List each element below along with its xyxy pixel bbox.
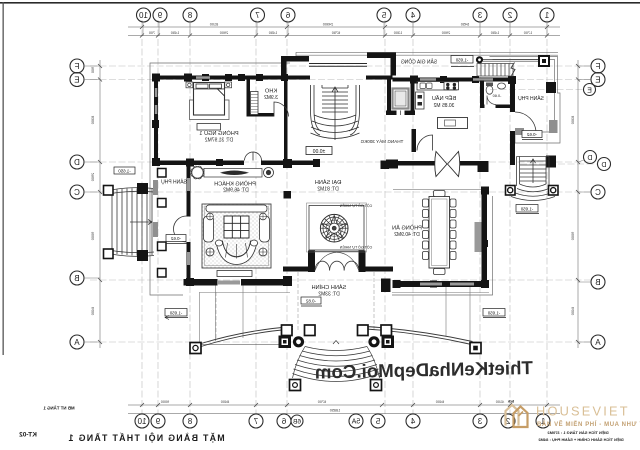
svg-text:E: E xyxy=(595,76,600,85)
svg-text:F: F xyxy=(595,62,600,71)
svg-text:bck: bck xyxy=(507,400,514,404)
svg-text:DT: 81M2: DT: 81M2 xyxy=(317,187,339,193)
svg-text:BẾP NẤU: BẾP NẤU xyxy=(432,95,456,102)
svg-text:5: 5 xyxy=(381,11,386,20)
svg-text:4: 4 xyxy=(410,11,415,20)
svg-text:PHÒNG ĂN: PHÒNG ĂN xyxy=(392,225,422,232)
svg-text:DT: 33M2: DT: 33M2 xyxy=(318,292,340,298)
svg-text:SẢNH PHỤ: SẢNH PHỤ xyxy=(518,95,544,102)
svg-text:KHO: KHO xyxy=(264,89,277,95)
svg-text:8100: 8100 xyxy=(210,23,218,27)
svg-text:1300: 1300 xyxy=(394,31,402,35)
svg-text:4100: 4100 xyxy=(496,400,504,404)
svg-text:24900: 24900 xyxy=(323,23,334,27)
svg-text:DT: 40.9M2: DT: 40.9M2 xyxy=(394,232,420,238)
svg-text:2900: 2900 xyxy=(91,173,95,181)
svg-text:3: 3 xyxy=(477,417,482,426)
svg-text:9000: 9000 xyxy=(571,232,575,240)
svg-text:±0.00: ±0.00 xyxy=(313,149,326,155)
svg-text:9000: 9000 xyxy=(161,400,169,404)
svg-text:2: 2 xyxy=(507,11,512,20)
svg-text:-1.650: -1.650 xyxy=(487,310,500,315)
svg-text:9000: 9000 xyxy=(91,232,95,240)
svg-text:A: A xyxy=(74,338,80,347)
svg-text:-1.650: -1.650 xyxy=(169,310,182,315)
svg-text:6400: 6400 xyxy=(91,307,95,315)
svg-text:4: 4 xyxy=(410,417,415,426)
svg-text:CỘT GỖ TỰ NHIÊN: CỘT GỖ TỰ NHIÊN xyxy=(339,203,372,208)
svg-text:B: B xyxy=(595,278,600,287)
svg-text:8400: 8400 xyxy=(221,400,229,404)
svg-text:6: 6 xyxy=(281,417,286,426)
svg-text:F: F xyxy=(74,62,79,71)
svg-text:KT-02: KT-02 xyxy=(19,432,37,439)
svg-text:-0.62: -0.62 xyxy=(170,236,181,241)
svg-text:-1.650: -1.650 xyxy=(455,57,468,62)
svg-text:E: E xyxy=(587,88,592,95)
svg-text:1700: 1700 xyxy=(524,31,532,35)
svg-text:SẢNH CHÍNH: SẢNH CHÍNH xyxy=(312,284,347,291)
svg-text:2900: 2900 xyxy=(220,31,228,35)
svg-text:8300: 8300 xyxy=(91,116,95,124)
svg-text:PHÒNG NGỦ 1: PHÒNG NGỦ 1 xyxy=(199,130,238,137)
svg-text:6700: 6700 xyxy=(318,400,326,404)
svg-text:10: 10 xyxy=(137,417,146,426)
svg-text:8: 8 xyxy=(187,11,192,20)
svg-text:MẶT BẰNG NỘI THẤT TẦNG 1: MẶT BẰNG NỘI THẤT TẦNG 1 xyxy=(67,432,224,443)
svg-text:THANG MÁY 300KG: THANG MÁY 300KG xyxy=(360,138,403,144)
svg-text:700: 700 xyxy=(149,31,155,35)
svg-text:C: C xyxy=(595,188,601,197)
svg-text:7: 7 xyxy=(253,417,258,426)
svg-text:PHÒNG KHÁCH: PHÒNG KHÁCH xyxy=(214,181,256,188)
svg-text:BẢN VẼ MIỄN PHÍ - MUA NHƯ Ý: BẢN VẼ MIỄN PHÍ - MUA NHƯ Ý xyxy=(537,420,640,428)
svg-text:8: 8 xyxy=(187,417,192,426)
svg-text:7: 7 xyxy=(255,11,260,20)
svg-text:2900: 2900 xyxy=(442,31,450,35)
svg-text:A: A xyxy=(595,338,601,347)
svg-text:30.85 M2: 30.85 M2 xyxy=(433,103,454,109)
svg-text:-0.60: -0.60 xyxy=(493,94,502,98)
svg-text:5A: 5A xyxy=(351,419,360,426)
svg-text:SẢNH PHỤ: SẢNH PHỤ xyxy=(161,179,187,186)
svg-text:1: 1 xyxy=(544,11,549,20)
svg-text:HOUSEVIET: HOUSEVIET xyxy=(536,404,630,419)
svg-text:6400: 6400 xyxy=(436,400,444,404)
svg-text:18850: 18850 xyxy=(330,409,341,413)
svg-text:D: D xyxy=(74,158,80,167)
svg-text:E: E xyxy=(74,76,79,85)
svg-text:3: 3 xyxy=(477,11,482,20)
svg-text:900: 900 xyxy=(91,67,95,73)
svg-text:6B: 6B xyxy=(293,419,301,426)
svg-text:3.9M2: 3.9M2 xyxy=(264,95,278,101)
svg-text:DIỆN TÍCH SÀN TẦNG 1 : 370M2: DIỆN TÍCH SÀN TẦNG 1 : 370M2 xyxy=(547,430,609,435)
svg-text:6: 6 xyxy=(285,11,290,20)
svg-text:1450: 1450 xyxy=(171,31,179,35)
svg-text:1450: 1450 xyxy=(269,31,277,35)
svg-text:8300: 8300 xyxy=(571,116,575,124)
svg-text:9: 9 xyxy=(155,417,160,426)
svg-text:5: 5 xyxy=(375,417,380,426)
svg-text:CỘT GỖ TỰ NHIÊN: CỘT GỖ TỰ NHIÊN xyxy=(339,245,372,250)
svg-text:-0.62: -0.62 xyxy=(526,132,537,137)
svg-text:-1.650: -1.650 xyxy=(118,169,131,174)
svg-text:1450: 1450 xyxy=(491,31,499,35)
svg-text:10: 10 xyxy=(139,11,148,20)
svg-text:DIỆN TÍCH SẢNH CHÍNH + SẢNH PH: DIỆN TÍCH SẢNH CHÍNH + SẢNH PHỤ : 84M2 xyxy=(538,437,624,442)
svg-text:B: B xyxy=(74,274,79,283)
svg-text:-0.82: -0.82 xyxy=(305,299,316,304)
svg-text:SÂN GIA CÔNG: SÂN GIA CÔNG xyxy=(401,59,438,66)
svg-text:9: 9 xyxy=(157,11,162,20)
svg-text:6750: 6750 xyxy=(332,31,340,35)
svg-text:ĐẠI SẢNH: ĐẠI SẢNH xyxy=(315,179,341,186)
svg-text:D: D xyxy=(601,162,606,169)
svg-text:MB NT TẦNG 1: MB NT TẦNG 1 xyxy=(43,406,75,411)
svg-text:DT: 46.9M2: DT: 46.9M2 xyxy=(223,188,249,194)
svg-text:C: C xyxy=(74,188,80,197)
svg-text:6450: 6450 xyxy=(461,23,469,27)
svg-text:6400: 6400 xyxy=(571,307,575,315)
svg-text:D: D xyxy=(587,155,592,162)
svg-text:DT: 31.97M2: DT: 31.97M2 xyxy=(205,138,234,144)
svg-text:-1.650: -1.650 xyxy=(520,206,533,211)
